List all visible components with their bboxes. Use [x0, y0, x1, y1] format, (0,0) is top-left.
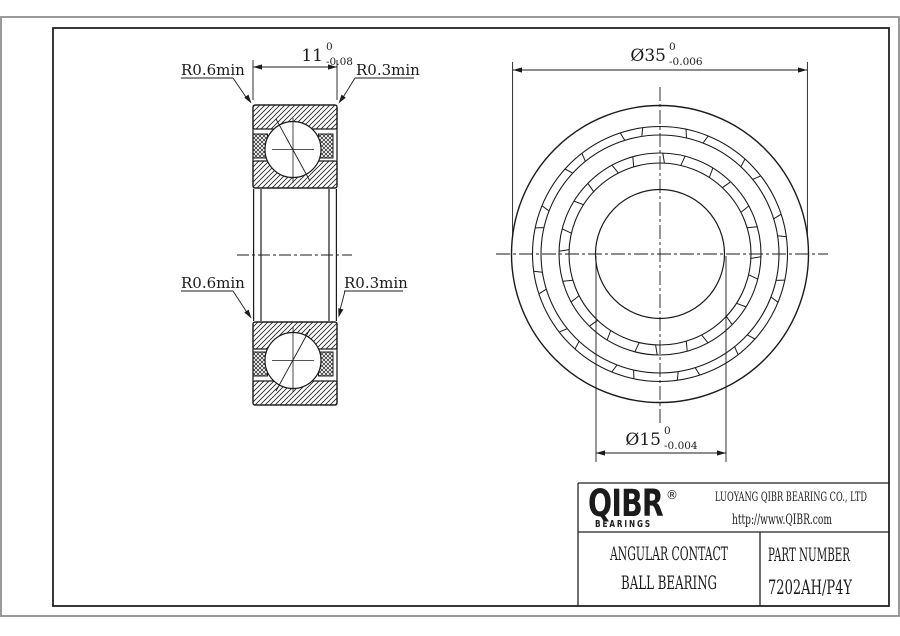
- section-bottom-half: [253, 322, 337, 405]
- radius-label-r03-top: R0.3min: [356, 61, 420, 79]
- product-name-line2: BALL BEARING: [621, 572, 717, 594]
- od-dim-upper-tol: 0: [669, 41, 676, 53]
- website-url: http://www.QIBR.com: [732, 512, 832, 528]
- brand-tagline: BEARINGS: [595, 519, 652, 530]
- product-name-line1: ANGULAR CONTACT: [609, 543, 728, 565]
- width-dim-lower-tol: -0.08: [326, 56, 353, 68]
- company-name: LUOYANG QIBR BEARING CO., LTD: [715, 490, 867, 505]
- width-dim-upper-tol: 0: [326, 41, 333, 53]
- radius-label-r03-bottom: R0.3min: [344, 274, 408, 292]
- part-number-label: PART NUMBER: [768, 544, 850, 566]
- od-dim-lower-tol: -0.006: [669, 56, 703, 68]
- radius-label-r06-top: R0.6min: [181, 61, 245, 79]
- bore-dim-upper-tol: 0: [664, 425, 671, 437]
- section-top-half: [253, 105, 337, 188]
- drawing-page: 11 0 -0.08 R0.6min R0.3min R0.6min R0.3m…: [0, 0, 900, 636]
- bore-dim-lower-tol: -0.004: [664, 440, 698, 452]
- bore-dim-value: Ø15: [625, 430, 661, 450]
- bearing-drawing: 11 0 -0.08 R0.6min R0.3min R0.6min R0.3m…: [0, 0, 900, 636]
- registered-trademark-icon: ®: [666, 488, 678, 502]
- radius-label-r06-bottom: R0.6min: [181, 274, 245, 292]
- width-dim-value: 11: [301, 46, 323, 66]
- part-number-value: 7202AH/P4Y: [768, 575, 853, 599]
- od-dim-value: Ø35: [630, 46, 666, 66]
